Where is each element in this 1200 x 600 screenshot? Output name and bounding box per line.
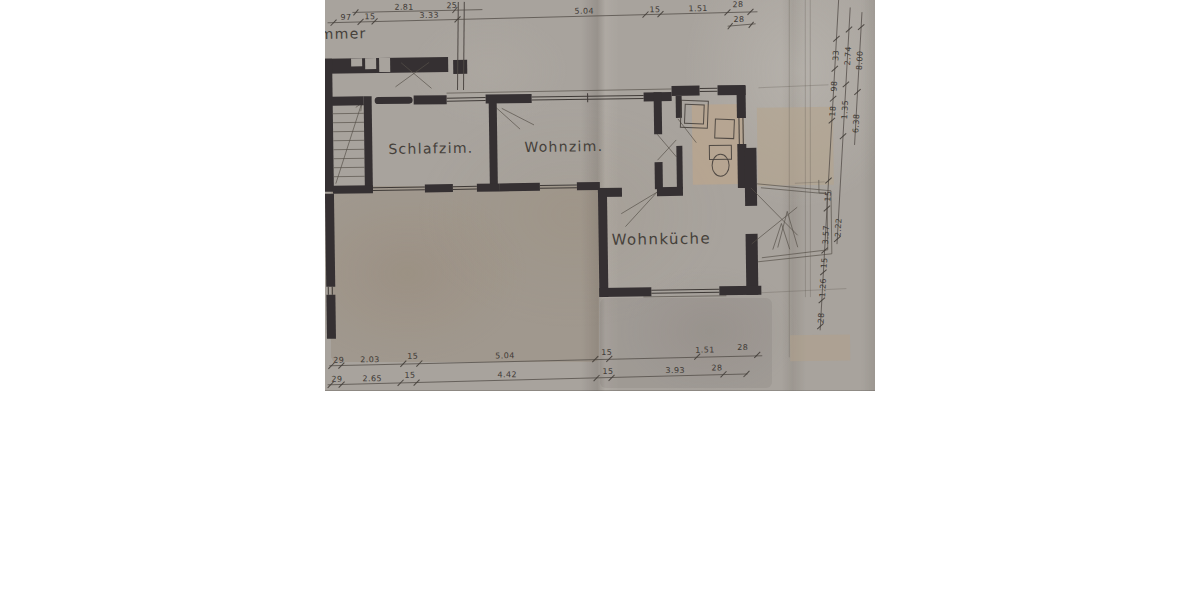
dim-label: 1.26 <box>818 278 828 298</box>
dim-label: 15 <box>601 348 612 357</box>
dim-label: 1.51 <box>695 345 715 354</box>
dim-label: 1.51 <box>688 4 708 13</box>
dim-label: 15 <box>823 190 833 201</box>
room-label-wohnkueche: Wohnküche <box>612 229 712 248</box>
dim-label: 25 <box>446 1 457 10</box>
staircase <box>333 96 373 192</box>
dim-label: 2.22 <box>833 218 843 238</box>
dim-label: 28 <box>711 363 722 372</box>
top-wall <box>332 89 672 132</box>
dim-label: 15 <box>404 371 415 380</box>
dim-label: 1.35 <box>840 100 850 120</box>
dim-label: 15 <box>602 367 613 376</box>
dim-label: 3.33 <box>419 11 439 20</box>
dim-label: 8.00 <box>855 50 865 70</box>
dim-label: 97 <box>340 13 351 22</box>
dim-label: 5.04 <box>574 7 594 16</box>
drawing-root: 2.81 25 97 15 3.33 5.04 <box>325 0 873 388</box>
dim-label: 29 <box>331 375 342 384</box>
room-labels: mmer Schlafzim. Wohnzim. Wohnküche <box>325 20 711 252</box>
room-label-schlafzimmer: Schlafzim. <box>388 140 473 157</box>
dim-label: 3.93 <box>665 366 685 375</box>
dim-label: 18 <box>828 105 838 116</box>
dim-label: 33 <box>831 50 841 61</box>
dim-label: 98 <box>829 80 839 91</box>
divider-wall <box>489 99 498 189</box>
dim-top-right: 28 <box>728 15 756 29</box>
dim-label: 28 <box>737 343 748 352</box>
mid-wall <box>333 182 600 194</box>
dim-label: 2.65 <box>362 374 382 383</box>
dim-label: 28 <box>734 15 745 24</box>
room-label-wohnzimmer: Wohnzim. <box>524 138 603 155</box>
dim-label: 28 <box>817 312 827 323</box>
wohnzimmer-right-wall <box>654 92 677 189</box>
floor-plan-drawing: 2.81 25 97 15 3.33 5.04 <box>325 0 875 390</box>
dim-label: 2.03 <box>360 355 380 364</box>
dim-label: 15 <box>364 12 375 21</box>
scanned-floor-plan-photo: 2.81 25 97 15 3.33 5.04 <box>325 0 875 391</box>
dim-label: 15 <box>649 5 660 14</box>
dim-label: 15 <box>820 257 830 268</box>
dim-label: 2.74 <box>843 46 853 66</box>
dim-label: 4.42 <box>497 370 517 379</box>
dim-label: 5.04 <box>495 351 515 360</box>
dim-row-bottom-b: 29 2.65 15 4.42 15 3.93 28 <box>327 363 749 388</box>
room-label-partial: mmer <box>325 25 367 42</box>
screenshot-canvas: 2.81 25 97 15 3.33 5.04 <box>0 0 1200 600</box>
dim-row-bottom-a: 29 2.03 15 5.04 15 1.51 28 <box>328 343 762 369</box>
dim-label: 3.57 <box>821 225 831 245</box>
dim-row-top: 97 15 3.33 5.04 15 1.51 28 <box>327 0 757 26</box>
dim-label: 6.38 <box>851 113 861 133</box>
dim-label: 15 <box>407 352 418 361</box>
balcony <box>751 180 832 262</box>
dim-label: 28 <box>732 0 743 9</box>
dim-label: 2.81 <box>394 3 414 12</box>
dim-label: 29 <box>333 356 344 365</box>
